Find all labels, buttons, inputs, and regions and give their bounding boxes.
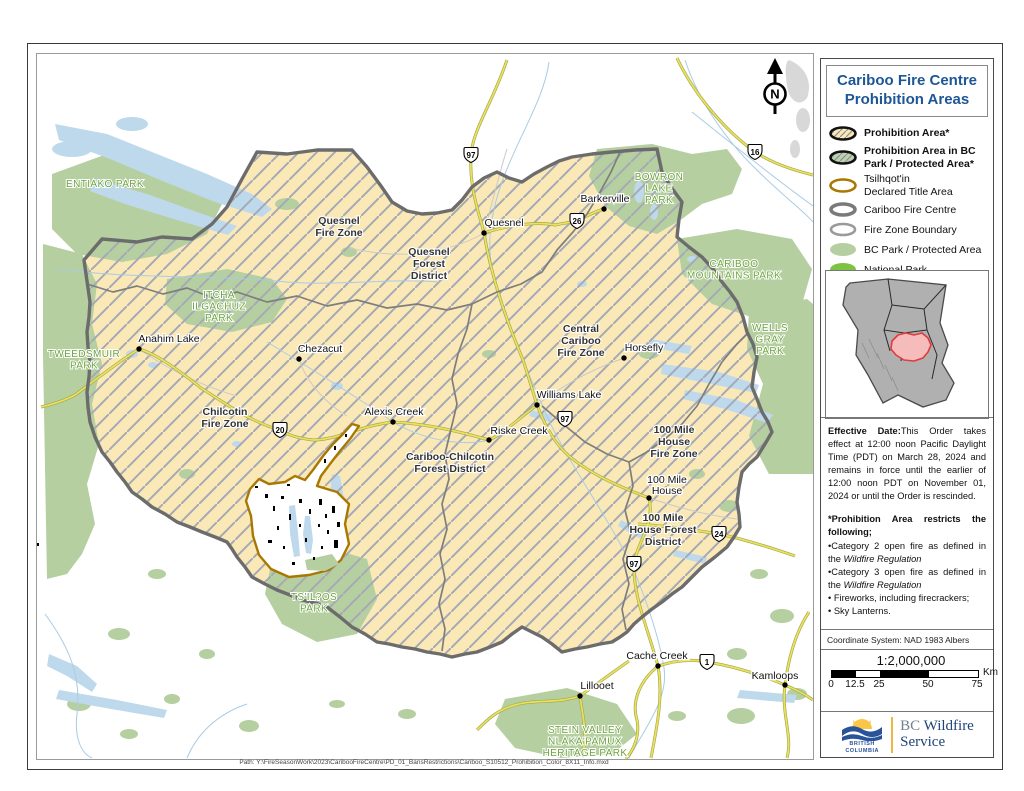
file-path-text: Path: Y:\FireSeasonWork\2023\CaribooFire…: [36, 759, 812, 766]
svg-text:House Forest: House Forest: [629, 524, 697, 536]
svg-text:Barkerville: Barkerville: [580, 193, 629, 205]
svg-text:Williams Lake: Williams Lake: [537, 389, 602, 401]
svg-text:97: 97: [467, 151, 476, 160]
restriction-item: •Category 2 open fire as defined in the …: [828, 540, 986, 566]
scale-ratio: 1:2,000,000: [829, 653, 993, 668]
svg-text:Fire Zone: Fire Zone: [201, 418, 248, 430]
effective-date-note: Effective Date:This Order takes effect a…: [821, 417, 993, 630]
svg-text:ILGACHUZ: ILGACHUZ: [192, 302, 246, 313]
prohibition-park-swatch: [828, 149, 858, 166]
svg-text:PARK: PARK: [300, 604, 328, 615]
svg-text:CARIBOO: CARIBOO: [710, 259, 759, 270]
legend-label: Tsilhqot'in Declared Title Area: [864, 173, 953, 198]
scale-bar: [831, 670, 979, 678]
svg-text:TS'IL?OS: TS'IL?OS: [291, 592, 337, 603]
svg-text:ENTIAKO PARK: ENTIAKO PARK: [66, 179, 144, 190]
fire-zone-label: Cariboo-ChilcotinForest District: [406, 451, 494, 475]
fire-zone-swatch: [828, 221, 858, 238]
city-dot: [601, 206, 606, 211]
svg-text:97: 97: [630, 560, 639, 569]
svg-text:LAKE: LAKE: [645, 184, 672, 195]
prohibition-restricts-heading: *Prohibition Area restricts the followin…: [828, 513, 986, 539]
bc-inset-map: [828, 275, 986, 415]
svg-text:TWEEDSMUIR: TWEEDSMUIR: [48, 349, 120, 360]
city-dot: [621, 355, 626, 360]
svg-text:Riske Creek: Riske Creek: [490, 425, 548, 437]
svg-text:Anahim Lake: Anahim Lake: [138, 333, 199, 345]
svg-text:HERITAGE PARK: HERITAGE PARK: [543, 748, 628, 759]
fire-zone-label: CentralCaribooFire Zone: [557, 323, 604, 359]
svg-text:PARK: PARK: [205, 313, 233, 324]
svg-text:STEIN VALLEY: STEIN VALLEY: [548, 725, 622, 736]
restriction-item: • Fireworks, including firecrackers;: [828, 592, 986, 605]
legend-label: Fire Zone Boundary: [864, 224, 957, 237]
svg-text:PARK: PARK: [756, 346, 784, 357]
svg-text:Cariboo-Chilcotin: Cariboo-Chilcotin: [406, 451, 494, 463]
legend-label: Prohibition Area in BC Park / Protected …: [864, 145, 976, 170]
fire-zone-label: QuesnelFire Zone: [315, 215, 362, 239]
prohibition-area-swatch: [828, 125, 858, 142]
svg-text:24: 24: [715, 530, 724, 539]
fire-zone-label: ChilcotinFire Zone: [201, 406, 248, 430]
svg-text:House: House: [658, 436, 690, 448]
svg-text:GRAY: GRAY: [755, 335, 784, 346]
scale-ticks: 012.5255075: [831, 678, 985, 690]
park-label: ENTIAKO PARK: [66, 179, 144, 190]
bc-wildfire-wordmark: BC Wildfire Service: [900, 719, 974, 751]
svg-text:ITCHA: ITCHA: [203, 290, 235, 301]
legend-item-fire-zone: Fire Zone Boundary: [828, 221, 991, 238]
scale-tick: 25: [873, 679, 884, 690]
svg-text:Horsefly: Horsefly: [625, 342, 664, 354]
city-dot: [577, 693, 582, 698]
logo-section: BRITISHCOLUMBIA BC Wildfire Service: [821, 712, 993, 757]
page-border: N ENTIAKO PARKTWEEDSMUIRPARKITCHAILGACHU…: [27, 43, 1003, 770]
map-frame: N ENTIAKO PARKTWEEDSMUIRPARKITCHAILGACHU…: [36, 53, 814, 760]
svg-text:House: House: [652, 485, 683, 497]
svg-text:1: 1: [705, 658, 710, 667]
svg-text:Alexis Creek: Alexis Creek: [365, 406, 425, 418]
svg-text:Cache Creek: Cache Creek: [626, 650, 688, 662]
bc-sun-icon: [840, 715, 884, 741]
city-label: 100 MileHouse: [646, 474, 687, 501]
coordinate-system-note: Coordinate System: NAD 1983 Albers: [821, 630, 993, 650]
svg-text:Fire Zone: Fire Zone: [650, 448, 697, 460]
svg-text:Chezacut: Chezacut: [298, 343, 342, 355]
legend-item-fire-centre: Cariboo Fire Centre: [828, 201, 991, 218]
wordmark-wildfire: Wildfire: [920, 718, 974, 734]
effective-date-text: This Order takes effect at 12:00 noon Pa…: [828, 426, 986, 501]
svg-text:BOWRON: BOWRON: [635, 172, 684, 183]
map-document: N ENTIAKO PARKTWEEDSMUIRPARKITCHAILGACHU…: [0, 0, 1024, 791]
city-dot: [136, 346, 141, 351]
scale-unit: Km: [983, 667, 998, 678]
map-title-line1: Cariboo Fire Centre: [827, 72, 987, 91]
scale-tick: 12.5: [845, 679, 864, 690]
scale-tick: 75: [971, 679, 982, 690]
brand-line1: BRITISH: [849, 741, 875, 747]
svg-text:16: 16: [751, 148, 760, 157]
svg-text:District: District: [645, 536, 682, 548]
north-label: N: [770, 87, 779, 102]
svg-text:Fire Zone: Fire Zone: [557, 347, 604, 359]
city-dot: [390, 419, 395, 424]
map: N ENTIAKO PARKTWEEDSMUIRPARKITCHAILGACHU…: [37, 54, 813, 759]
svg-text:Lillooet: Lillooet: [580, 680, 613, 692]
svg-text:Quesnel: Quesnel: [318, 215, 360, 227]
svg-text:Forest: Forest: [413, 258, 446, 270]
city-dot: [481, 230, 486, 235]
effective-date-label: Effective Date:: [828, 426, 901, 436]
city-dot: [655, 663, 660, 668]
legend-item-prohibition-park: Prohibition Area in BC Park / Protected …: [828, 145, 991, 170]
svg-text:Quesnel: Quesnel: [484, 217, 523, 229]
city-dot: [646, 495, 651, 500]
wordmark-service: Service: [900, 735, 974, 751]
svg-text:100 Mile: 100 Mile: [654, 424, 695, 436]
svg-text:100 Mile: 100 Mile: [643, 512, 684, 524]
legend-label: Cariboo Fire Centre: [864, 204, 956, 217]
svg-text:PARK: PARK: [645, 195, 673, 206]
svg-text:MOUNTAINS PARK: MOUNTAINS PARK: [687, 271, 781, 282]
map-title: Cariboo Fire Centre Prohibition Areas: [826, 65, 988, 117]
brand-line2: COLUMBIA: [845, 748, 879, 754]
park-label: WELLSGRAYPARK: [752, 323, 788, 357]
svg-text:20: 20: [276, 426, 285, 435]
scale-section: 1:2,000,000 Km 012.5255075: [821, 650, 993, 712]
bc-overview-inset: [825, 270, 989, 419]
sidebar: Cariboo Fire Centre Prohibition Areas Pr…: [820, 58, 994, 758]
tsilhqotin-swatch: [828, 177, 858, 194]
city-dot: [534, 402, 539, 407]
scale-tick: 0: [828, 679, 834, 690]
svg-text:26: 26: [573, 217, 582, 226]
svg-text:PARK: PARK: [70, 361, 98, 372]
logo-divider: [891, 717, 893, 753]
city-dot: [296, 356, 301, 361]
svg-text:Forest District: Forest District: [414, 463, 486, 475]
svg-text:Central: Central: [563, 323, 599, 335]
svg-text:District: District: [411, 270, 448, 282]
svg-text:Quesnel: Quesnel: [408, 246, 450, 258]
bc-government-logo: BRITISHCOLUMBIA: [840, 715, 884, 754]
svg-text:97: 97: [561, 415, 570, 424]
wordmark-bc: BC: [900, 718, 920, 734]
fire-zone-label: QuesnelForestDistrict: [408, 246, 450, 282]
legend-item-prohibition-area: Prohibition Area*: [828, 125, 991, 142]
legend: Prohibition Area* Prohibition Area in BC…: [828, 125, 991, 281]
park-label: STEIN VALLEYNLAKA'PAMUXHERITAGE PARK: [543, 725, 628, 759]
bc-park-swatch: [828, 241, 858, 258]
legend-label: Prohibition Area*: [864, 127, 949, 140]
city-dot: [782, 682, 787, 687]
fire-centre-swatch: [828, 201, 858, 218]
svg-text:WELLS: WELLS: [752, 323, 788, 334]
legend-item-bc-park: BC Park / Protected Area: [828, 241, 991, 258]
restriction-item: • Sky Lanterns.: [828, 605, 986, 618]
legend-label: BC Park / Protected Area: [864, 244, 981, 257]
svg-text:Cariboo: Cariboo: [561, 335, 601, 347]
map-title-line2: Prohibition Areas: [827, 91, 987, 110]
legend-item-tsilhqotin: Tsilhqot'in Declared Title Area: [828, 173, 991, 198]
city-dot: [486, 437, 491, 442]
restriction-item: •Category 3 open fire as defined in the …: [828, 566, 986, 592]
svg-text:Fire Zone: Fire Zone: [315, 227, 362, 239]
svg-text:Chilcotin: Chilcotin: [203, 406, 248, 418]
scale-tick: 50: [922, 679, 933, 690]
svg-text:NLAKA'PAMUX: NLAKA'PAMUX: [548, 737, 622, 748]
svg-text:Kamloops: Kamloops: [752, 670, 799, 682]
